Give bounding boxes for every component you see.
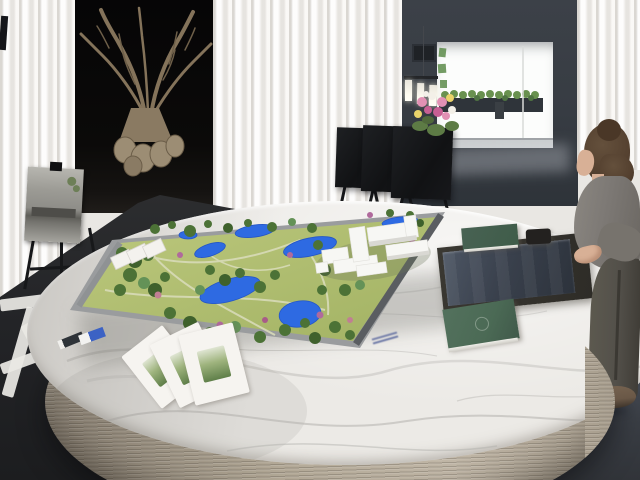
- easel-clip: [50, 162, 62, 172]
- small-green-book: [461, 224, 519, 251]
- book-emboss: [474, 316, 490, 332]
- showroom-scene: [0, 0, 640, 480]
- pendant-bar: [404, 76, 438, 79]
- architectural-model: [60, 195, 460, 355]
- bollard: [495, 102, 504, 119]
- visitor-bun: [597, 119, 621, 141]
- flower-bouquet: [408, 86, 466, 138]
- flowers: [414, 91, 456, 120]
- pendant-wire: [423, 26, 424, 78]
- leaves: [412, 116, 459, 136]
- wall-display: [412, 44, 436, 62]
- tablet-device: [526, 228, 552, 244]
- green-wall-glimpse: [438, 48, 447, 88]
